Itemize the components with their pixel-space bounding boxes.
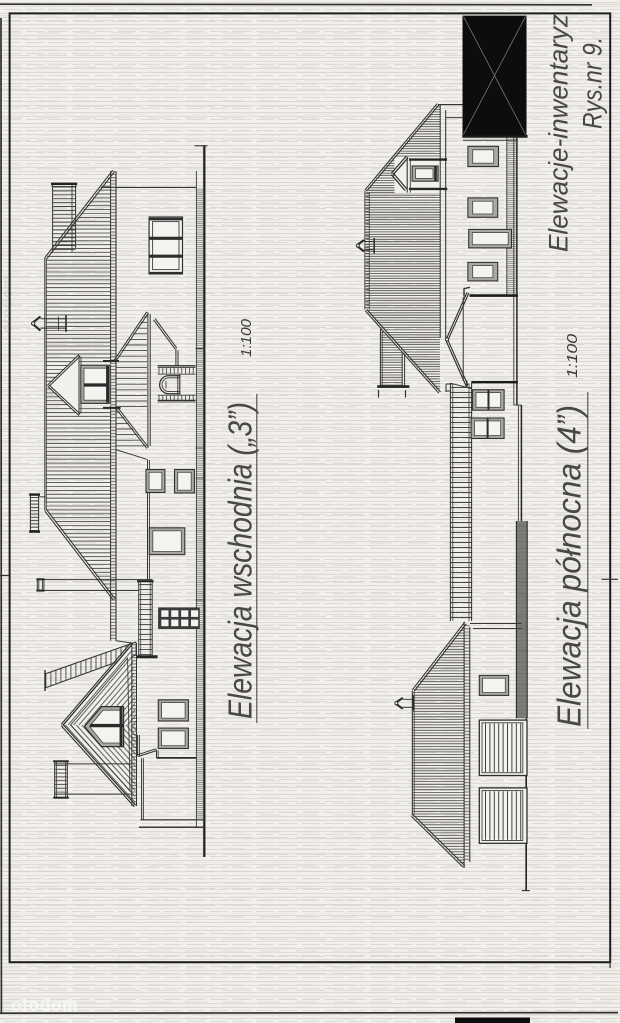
svg-text:1:100: 1:100	[565, 334, 581, 378]
svg-text:otodom: otodom	[11, 995, 78, 1015]
svg-text:Elewacja północna (4”): Elewacja północna (4”)	[551, 405, 588, 727]
svg-text:Rys.nr 9.: Rys.nr 9.	[578, 37, 608, 129]
svg-text:Elewacja wschodnia („3”): Elewacja wschodnia („3”)	[222, 402, 259, 719]
svg-text:1:100: 1:100	[239, 319, 255, 357]
svg-text:otodom: otodom	[0, 275, 16, 333]
svg-text:Elewacje-inwentaryz: Elewacje-inwentaryz	[544, 14, 574, 252]
